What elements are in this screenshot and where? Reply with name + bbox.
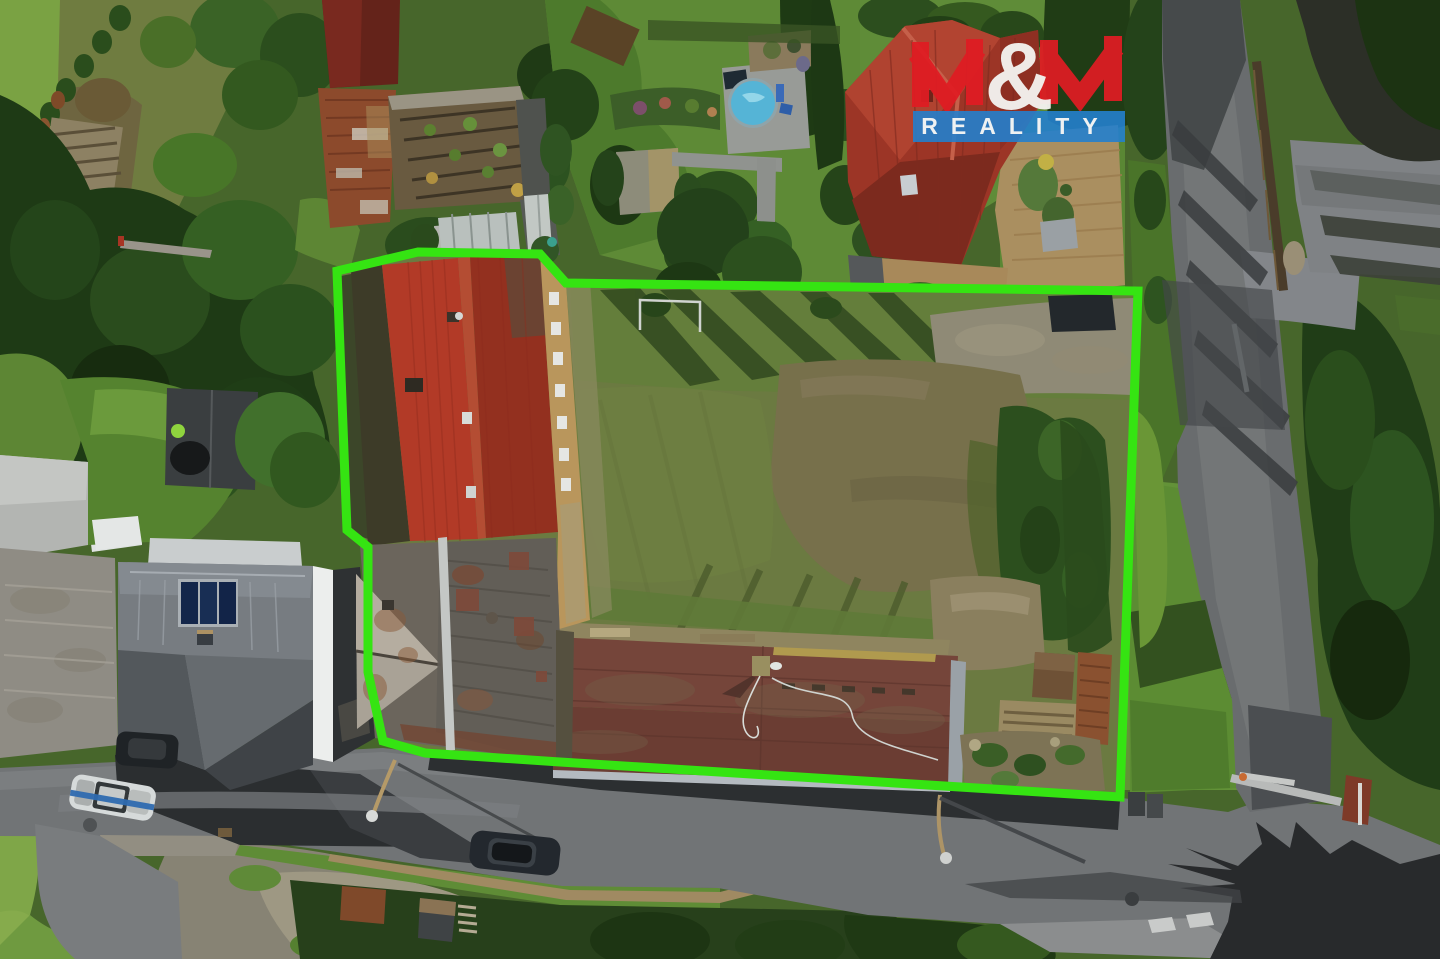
- svg-text:REALITY: REALITY: [921, 113, 1110, 139]
